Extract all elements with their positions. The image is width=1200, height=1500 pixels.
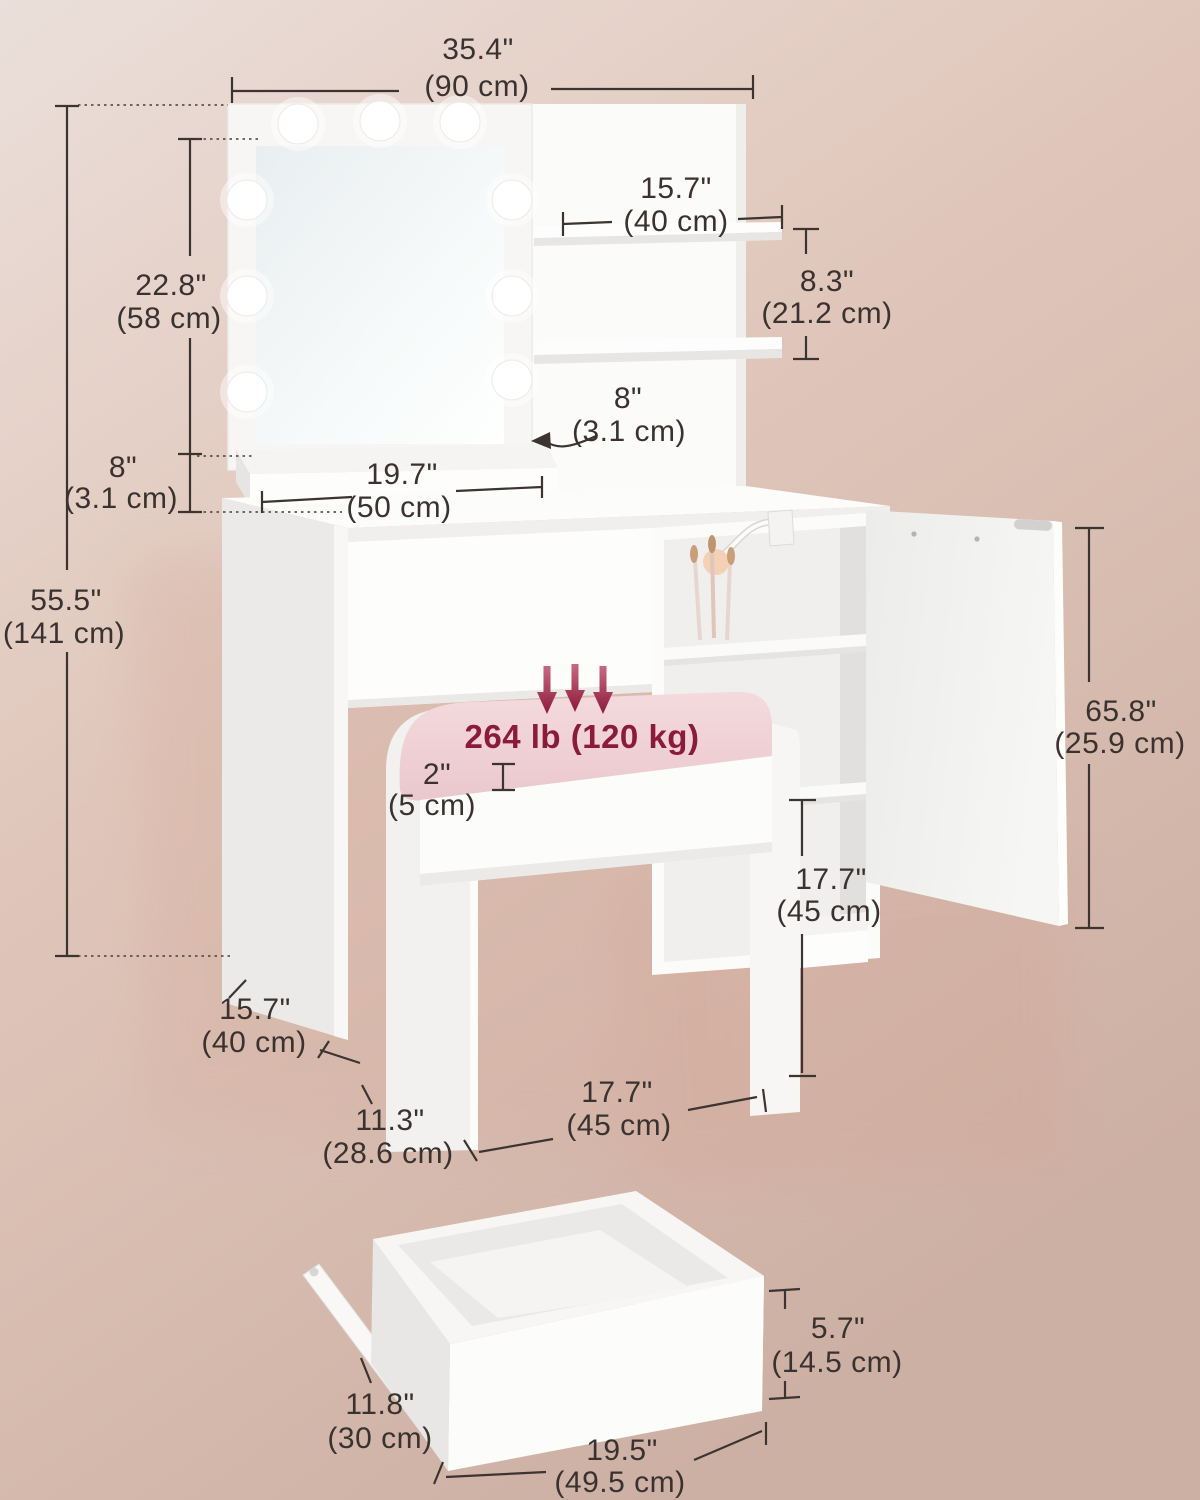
- drawer-depth-in-label: 11.8": [345, 1388, 414, 1421]
- total-height-in-label: 55.5": [30, 584, 102, 617]
- stool-depth-cm-label: (28.6 cm): [322, 1137, 453, 1170]
- overall-width-in-label: 35.4": [442, 33, 514, 66]
- drawer-depth-cm-label: (30 cm): [327, 1422, 432, 1455]
- round-accessory: [703, 549, 729, 575]
- weight-capacity-label: 264 lb (120 kg): [465, 718, 700, 755]
- overall-width-cm-label: (90 cm): [424, 70, 529, 103]
- drawer-height-in-label: 5.7": [811, 1312, 865, 1345]
- door-width-cm-label: (25.9 cm): [1054, 727, 1185, 760]
- light-bulb: [485, 353, 539, 407]
- shelf-thickness-in-label: 8": [614, 382, 642, 415]
- stool-width-cm-label: (45 cm): [566, 1109, 671, 1142]
- desk-depth-cm-label: (40 cm): [201, 1026, 306, 1059]
- stool-depth-in-label: 11.3": [355, 1104, 424, 1137]
- desk-left-panel-edge: [334, 525, 348, 1040]
- riser-height-in-label: 8": [109, 451, 137, 484]
- dimension-diagram: 35.4" (90 cm) 55.5" (141 cm) 22.8" (58 c…: [0, 0, 1200, 1500]
- shelf-spacing-in-label: 8.3": [800, 265, 854, 298]
- shelf-length-cm-label: (40 cm): [623, 205, 728, 238]
- riser-length-in-label: 19.7": [366, 458, 438, 491]
- shelf-length-in-label: 15.7": [640, 172, 712, 205]
- stool-width-in-label: 17.7": [581, 1076, 653, 1109]
- load-arrows: [537, 664, 613, 714]
- mirror-glass: [256, 146, 504, 444]
- light-bulb: [220, 173, 274, 227]
- door-screw-hole: [911, 531, 916, 536]
- cushion-thickness-cm-label: (5 cm): [388, 789, 476, 822]
- compartment-height-in-label: 17.7": [795, 863, 867, 896]
- door-handle: [1014, 519, 1052, 531]
- compartment-height-cm-label: (45 cm): [776, 895, 881, 928]
- light-bulb: [271, 97, 325, 151]
- drawer-width-in-label: 19.5": [586, 1434, 658, 1467]
- light-bulb: [433, 95, 487, 149]
- light-bulb: [485, 269, 539, 323]
- door-panel: [866, 510, 1059, 926]
- backboard-edge: [736, 104, 746, 492]
- cushion-thickness-in-label: 2": [423, 758, 451, 791]
- mirror-height-in-label: 22.8": [135, 269, 207, 302]
- door-width-in-label: 65.8": [1085, 695, 1157, 728]
- drawer-height-cm-label: (14.5 cm): [771, 1346, 902, 1379]
- light-bulb: [220, 269, 274, 323]
- hollywood-mirror: [220, 94, 539, 470]
- drawer-width-cm-label: (49.5 cm): [554, 1466, 685, 1499]
- riser-height-cm-label: (3.1 cm): [64, 482, 178, 515]
- riser-length-cm-label: (50 cm): [346, 491, 451, 524]
- rail-screw: [310, 1268, 319, 1277]
- mirror-height-cm-label: (58 cm): [116, 302, 221, 335]
- total-height-cm-label: (141 cm): [3, 617, 125, 650]
- light-bulb: [220, 365, 274, 419]
- light-bulb: [485, 173, 539, 227]
- diagram-canvas: 35.4" (90 cm) 55.5" (141 cm) 22.8" (58 c…: [0, 0, 1200, 1500]
- power-plug: [768, 510, 794, 546]
- cabinet-door-open: [866, 510, 1068, 926]
- door-screw-hole: [974, 536, 979, 541]
- shelf-spacing-cm-label: (21.2 cm): [761, 297, 892, 330]
- light-bulb: [353, 94, 407, 148]
- desk-depth-in-label: 15.7": [219, 993, 291, 1026]
- desk-left-panel: [222, 498, 348, 1040]
- shelf-thickness-cm-label: (3.1 cm): [572, 415, 686, 448]
